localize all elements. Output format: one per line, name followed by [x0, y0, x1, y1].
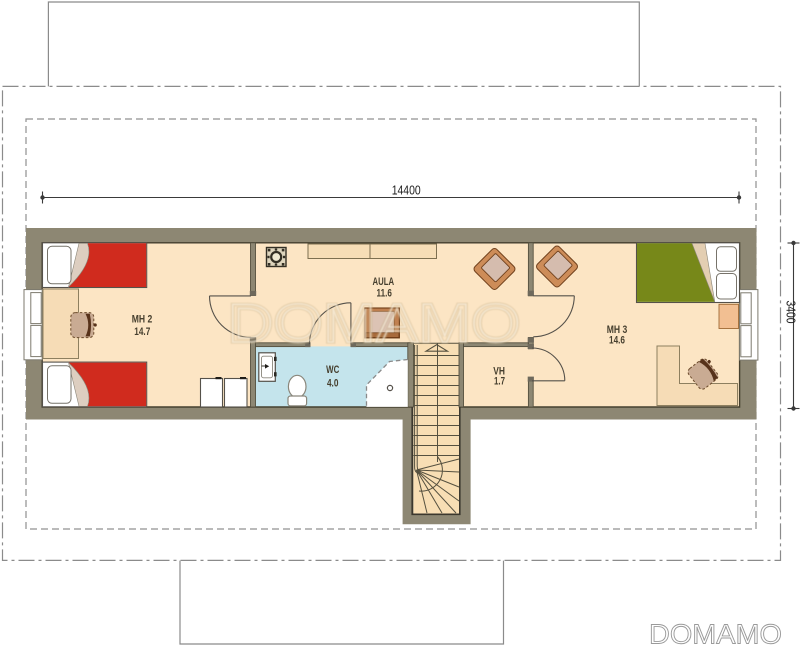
svg-text:14.7: 14.7 [134, 326, 150, 338]
svg-text:AULA: AULA [373, 276, 395, 288]
svg-text:DOMAMO: DOMAMO [649, 619, 782, 649]
svg-text:4.0: 4.0 [327, 377, 339, 389]
svg-text:DOMAMO: DOMAMO [228, 292, 521, 354]
svg-text:1.7: 1.7 [494, 376, 505, 388]
svg-text:3400: 3400 [784, 301, 799, 324]
svg-text:14.6: 14.6 [609, 334, 625, 346]
svg-text:WC: WC [326, 364, 339, 376]
svg-text:MH 2: MH 2 [132, 313, 153, 325]
svg-text:14400: 14400 [392, 183, 421, 198]
